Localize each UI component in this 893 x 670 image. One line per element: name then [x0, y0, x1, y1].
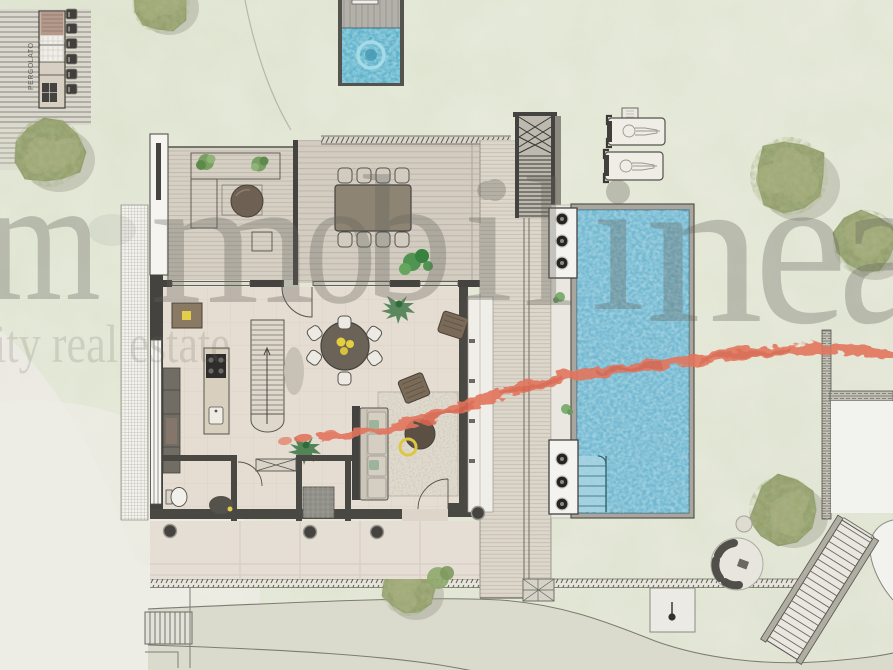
svg-text:m: m [0, 143, 101, 338]
svg-text:ity real estate: ity real estate [0, 314, 230, 374]
svg-text:i: i [591, 136, 645, 352]
svg-text:i: i [463, 140, 513, 339]
svg-text:l: l [523, 141, 574, 346]
svg-text:m: m [150, 142, 315, 341]
svg-text:a: a [838, 124, 893, 370]
svg-text:PERGOLATO: PERGOLATO [28, 43, 35, 90]
svg-text:b: b [363, 139, 453, 338]
svg-text:n: n [645, 130, 763, 368]
svg-text:e: e [754, 124, 848, 370]
